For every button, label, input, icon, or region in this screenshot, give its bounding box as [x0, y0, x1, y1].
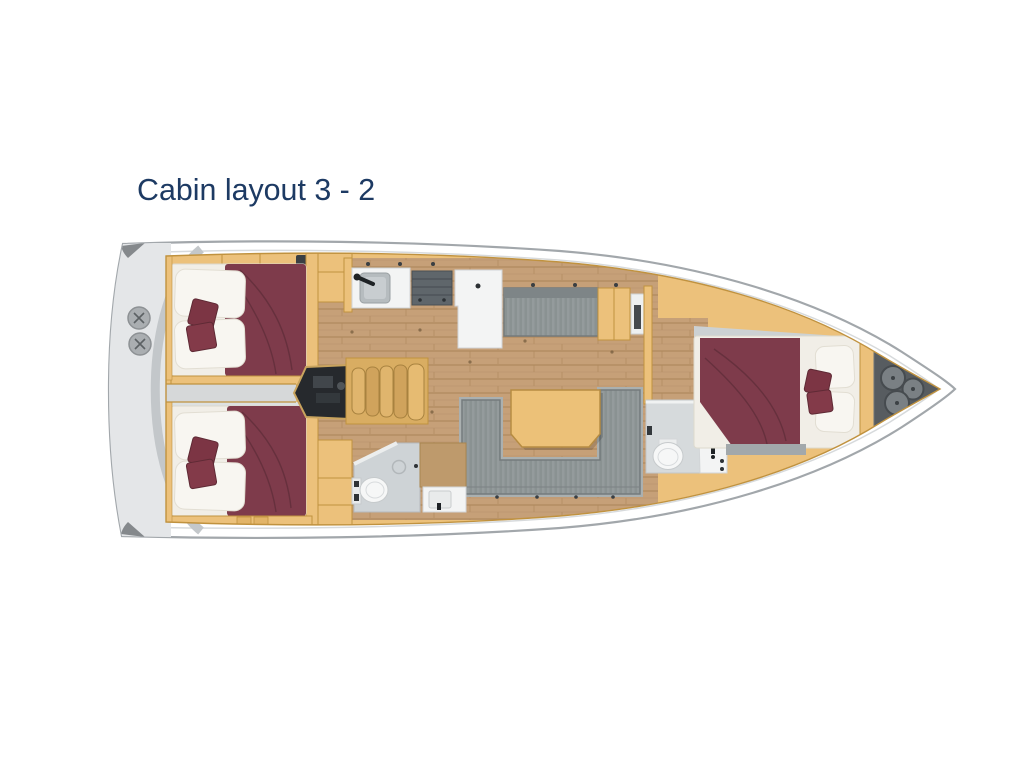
cushion — [186, 322, 217, 352]
stove-icon — [412, 271, 452, 305]
companionway-stairs — [346, 358, 428, 424]
yacht-floor-plan-svg — [0, 0, 1024, 768]
helm-wheel-icon — [129, 333, 151, 355]
aft-corridor — [166, 384, 296, 402]
cabinet-top — [420, 443, 466, 487]
faucet-icon — [437, 503, 441, 510]
aft-cabin-starboard — [166, 402, 318, 530]
floor-plan — [0, 0, 1024, 768]
forward-bulkhead — [644, 286, 652, 404]
engine-compartment — [294, 365, 350, 419]
salon-table — [511, 390, 603, 450]
cushion — [807, 389, 834, 414]
page-title: Cabin layout 3 - 2 — [137, 172, 375, 208]
aft-cabin-port — [166, 252, 318, 385]
forward-cabin — [694, 326, 874, 455]
helm-wheel-icon — [128, 307, 150, 329]
interior — [100, 230, 960, 550]
locker — [318, 440, 352, 528]
cushion — [186, 459, 217, 489]
galley-counter — [455, 270, 502, 348]
toilet-icon — [352, 478, 388, 505]
settee-port — [504, 283, 644, 340]
